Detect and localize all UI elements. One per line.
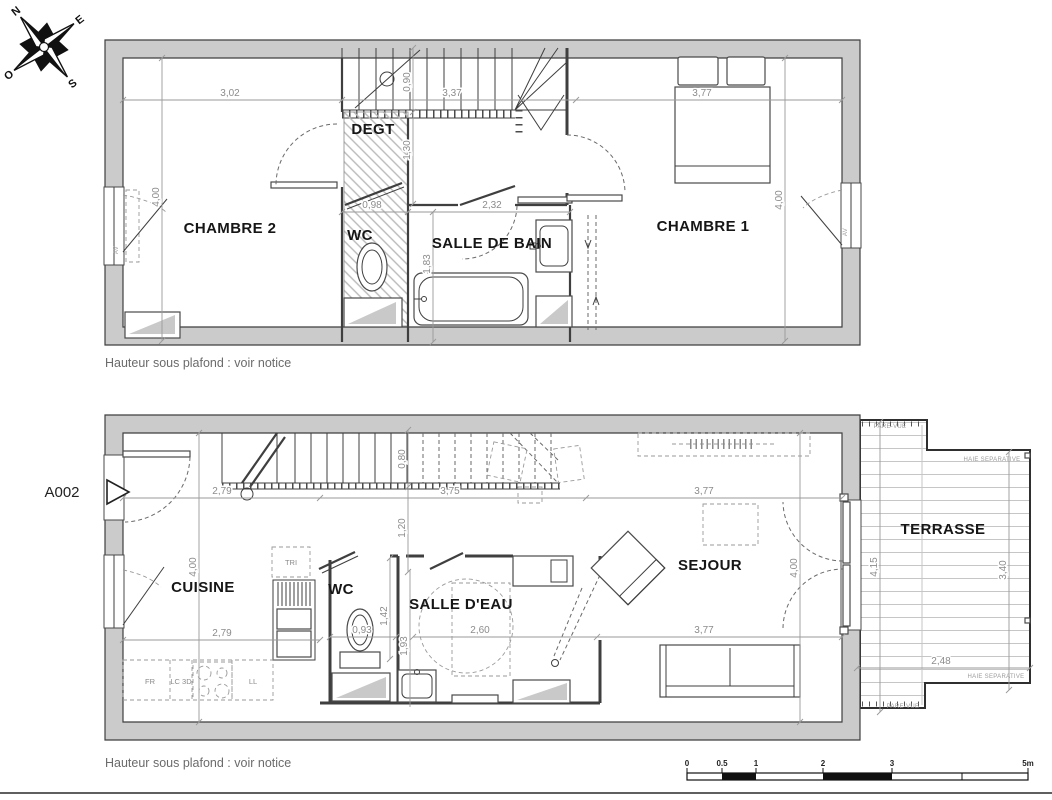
dim-upper-landing: 1,30 xyxy=(402,140,413,160)
scale-bar: 0 0.5 1 2 3 5m xyxy=(685,759,1034,780)
dim-upper-chambre1-width: 3,77 xyxy=(692,88,712,99)
dim-terrace-height-left: 4,15 xyxy=(869,557,880,577)
dim-lower-wc-height: 1,42 xyxy=(379,606,390,626)
scale-label-05: 0.5 xyxy=(716,759,728,768)
dim-lower-sejour-width: 3,77 xyxy=(694,486,714,497)
compass-south-label: S xyxy=(66,77,79,91)
room-label-degt: DEGT xyxy=(351,121,394,138)
room-label-cuisine: CUISINE xyxy=(171,579,235,596)
dim-upper-stairs-width: 3,37 xyxy=(442,88,462,99)
dim-lower-sde-width: 2,60 xyxy=(470,625,490,636)
dim-upper-height-right: 4,00 xyxy=(774,190,785,210)
dim-lower-landing: 1,20 xyxy=(397,518,408,538)
floor-plan-drawing: N E S O AV AV xyxy=(0,0,1052,800)
dim-upper-stair-depth: 0,90 xyxy=(402,72,413,92)
chambre1-door xyxy=(567,135,625,201)
degt-wc-hatched-area xyxy=(344,112,408,326)
dim-lower-sde-height: 1,93 xyxy=(399,636,410,656)
compass-rose: N E S O xyxy=(0,0,115,119)
room-label-salle-eau: SALLE D'EAU xyxy=(409,596,513,613)
dim-upper-sdb-width: 2,32 xyxy=(482,200,502,211)
dim-lower-cuisine-width-b: 2,79 xyxy=(212,628,232,639)
dim-upper-height-left: 4,00 xyxy=(151,187,162,207)
upper-duct-lines xyxy=(585,215,599,330)
kitchen-fr-label: FR xyxy=(145,677,156,686)
terrace-tag-haie-top: HAIE SEPARATIVE xyxy=(964,457,1021,463)
room-label-chambre1: CHAMBRE 1 xyxy=(657,218,750,235)
upper-ceiling-note: Hauteur sous plafond : voir notice xyxy=(105,356,291,370)
upper-floor-plan: AV AV xyxy=(104,40,861,345)
kitchen-ll-label: LL xyxy=(249,677,257,686)
lower-ceiling-note: Hauteur sous plafond : voir notice xyxy=(105,756,291,770)
chambre2-radiator xyxy=(125,312,180,338)
kitchen-tri-label: TRI xyxy=(285,558,297,567)
room-label-chambre2: CHAMBRE 2 xyxy=(184,220,277,237)
dim-upper-wc-width: 0,98 xyxy=(362,200,382,211)
compass-north-label: N xyxy=(9,4,23,18)
dim-lower-height-right: 4,00 xyxy=(789,558,800,578)
room-label-sdb: SALLE DE BAIN xyxy=(432,235,552,252)
upper-left-window-tag: AV xyxy=(114,246,120,254)
scale-label-5m: 5m xyxy=(1022,759,1034,768)
terrace-tag-parevue-bottom: PARE-VUE xyxy=(887,704,920,710)
dim-lower-height-left: 4,00 xyxy=(188,557,199,577)
compass-east-label: E xyxy=(73,13,86,27)
dim-terrace-height-right: 3,40 xyxy=(998,560,1009,580)
scale-label-0: 0 xyxy=(685,759,690,768)
terrace-tag-parevue-top: PARE-VUE xyxy=(874,424,907,430)
dim-upper-sdb-height: 1,83 xyxy=(422,254,433,274)
dim-lower-cuisine-width: 2,79 xyxy=(212,486,232,497)
scale-label-2: 2 xyxy=(821,759,826,768)
kitchen-lc-label: LC 3D xyxy=(170,677,192,686)
kitchen-window xyxy=(104,555,164,628)
entry-tag-label: A002 xyxy=(44,484,79,501)
dim-lower-sejour-width-b: 3,77 xyxy=(694,625,714,636)
bed xyxy=(675,57,770,183)
dim-lower-stairs-width: 3,75 xyxy=(440,486,460,497)
room-label-upper-wc: WC xyxy=(347,227,373,244)
chambre2-door xyxy=(271,124,337,188)
dim-lower-wc-width: 0,93 xyxy=(352,625,372,636)
terrace-tag-haie-bottom: HAIE SEPARATIVE xyxy=(968,674,1025,680)
upper-right-window-tag: AV xyxy=(843,228,849,236)
dim-lower-stair-depth: 0,80 xyxy=(397,449,408,469)
dim-terrace-width: 2,48 xyxy=(931,656,951,667)
dim-upper-chambre2-width: 3,02 xyxy=(220,88,240,99)
floor-plan-page: N E S O AV AV xyxy=(0,0,1052,800)
lower-staircase xyxy=(222,433,560,500)
scale-label-1: 1 xyxy=(754,759,759,768)
room-label-lower-wc: WC xyxy=(328,581,354,598)
salle-eau xyxy=(398,553,600,703)
kitchen-units: TRI FR LC 3D LL xyxy=(123,547,315,700)
room-label-sejour: SEJOUR xyxy=(678,557,742,574)
bathtub xyxy=(414,273,528,325)
lower-floor-plan: PARE-VUE HAIE SEPARATIVE HAIE SEPARATIVE… xyxy=(104,415,1033,740)
upper-right-window: AV xyxy=(801,183,861,248)
scale-label-3: 3 xyxy=(890,759,895,768)
room-label-terrasse: TERRASSE xyxy=(901,521,986,538)
